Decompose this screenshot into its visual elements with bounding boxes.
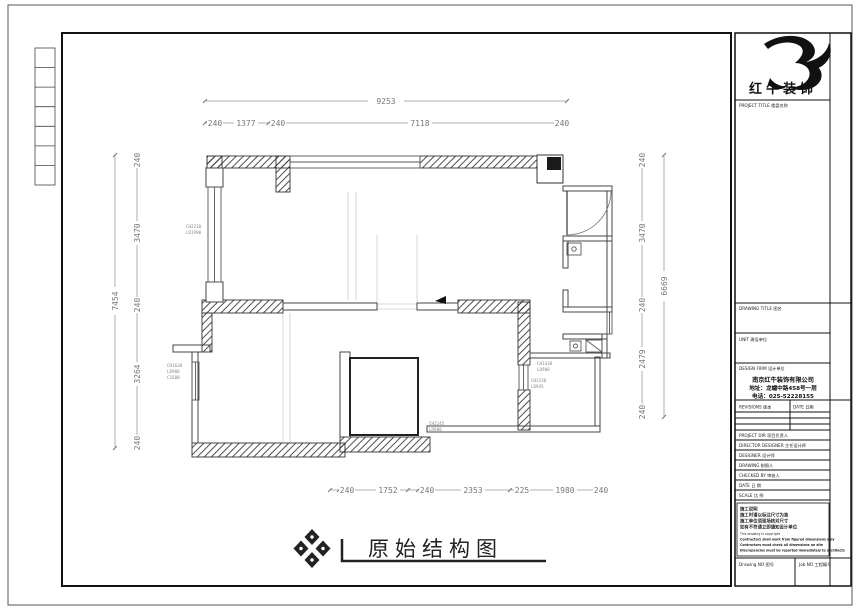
title-block-labels: PROJECT TITLE 楼盘名称 DRAWING TITLE 图名 UNIT… xyxy=(739,102,831,568)
unit-label: UNIT 建设单位 xyxy=(739,336,767,343)
label-window-bottom-1: CH2245 xyxy=(429,421,445,426)
note-line-1: 施工说明 xyxy=(740,506,758,513)
note-line-4: 如有不符请立即通知设计单位 xyxy=(740,524,798,531)
staff-row-drawing: DRAWING 制图人 xyxy=(739,462,774,469)
staff-row-date: DATE 日 期 xyxy=(739,483,761,489)
inner-room-outline xyxy=(350,358,418,435)
dim-bottom-3: 2353 xyxy=(463,486,482,495)
company-phone: 电话：025-52228155 xyxy=(752,392,814,400)
dim-bottom-2: 240 xyxy=(420,486,435,495)
dim-top-0: 240 xyxy=(208,119,223,128)
dim-right-0: 240 xyxy=(638,153,647,168)
dim-left-total: 7454 xyxy=(111,291,120,310)
company-name: 南京红牛装饰有限公司 xyxy=(752,376,814,384)
dim-top-4: 240 xyxy=(555,119,570,128)
dim-bottom-4: 225 xyxy=(515,486,530,495)
date-col-label: DATE 日期 xyxy=(793,405,814,411)
design-firm-label: DESIGN FIRM 设计单位 xyxy=(739,365,785,372)
label-window-left-lower-2: LD980 xyxy=(167,369,180,374)
dim-top-2: 240 xyxy=(271,119,286,128)
drawing-sheet: CH2210 LD1990 CH1630 LD980 C1600 CH1430 … xyxy=(0,0,860,610)
label-window-right-upper-1: CH1430 xyxy=(537,361,553,366)
dim-bottom-5: 1980 xyxy=(555,486,574,495)
dim-right-4: 240 xyxy=(638,405,647,420)
project-title-label: PROJECT TITLE 楼盘名称 xyxy=(739,102,788,109)
company-address: 地址：龙蟠中路458号一层 xyxy=(749,384,817,392)
dim-left-0: 240 xyxy=(133,153,142,168)
drawing-no-label: Drawing NO 图号 xyxy=(739,562,774,568)
drawing-frame xyxy=(62,33,731,586)
dim-bottom-6: 240 xyxy=(594,486,609,495)
staff-row-director-designer: DIRECTOR DESIGNER 主任设计师 xyxy=(739,442,806,449)
dim-top-1: 1377 xyxy=(236,119,255,128)
dims-bottom: 240 1752 240 2353 225 1980 240 xyxy=(339,486,609,496)
label-window-left-upper-2: LD1990 xyxy=(186,230,202,235)
fold-marks xyxy=(35,48,55,185)
entry-door xyxy=(567,191,611,235)
revisions-label: REVISIONS 版本 xyxy=(739,404,772,411)
note-line-5: This drawing is copyright xyxy=(739,532,781,536)
label-window-right-lower-1: CH1530 xyxy=(531,378,547,383)
note-line-7: Contractors must check all dimensions on… xyxy=(740,543,823,547)
ornament-diamond xyxy=(294,529,331,568)
staff-row-checked-by: CHECKED BY 审核人 xyxy=(739,472,780,479)
fixtures xyxy=(567,243,602,352)
flue-block xyxy=(537,155,563,183)
dim-right-total: 6669 xyxy=(660,276,669,295)
dim-bottom-1: 1752 xyxy=(378,486,397,495)
dim-top-total: 9253 xyxy=(376,97,395,106)
title-block: 红牛装饰 PROJECT TITLE 楼盘名称 DRAWING TITLE 图名… xyxy=(735,33,851,586)
staff-row-designer: DESIGNER 设计师 xyxy=(739,452,775,459)
note-line-8: Discrepancies must be reported immediate… xyxy=(740,549,845,553)
note-line-6: Contractors shall work from figured dime… xyxy=(740,538,836,542)
logo-text: 红牛装饰 xyxy=(749,81,817,97)
dim-right-2: 240 xyxy=(638,298,647,313)
dim-right-3: 2479 xyxy=(638,349,647,368)
floor-plan: CH2210 LD1990 CH1630 LD980 C1600 CH1430 … xyxy=(167,155,612,457)
dim-right-1: 3470 xyxy=(638,223,647,242)
staff-row-project-dir: PROJECT DIR 项目负责人 xyxy=(739,432,789,439)
cad-canvas: CH2210 LD1990 CH1630 LD980 C1600 CH1430 … xyxy=(0,0,860,610)
label-window-right-upper-2: LD900 xyxy=(537,367,550,372)
drawing-title-group: 原始结构图 xyxy=(294,529,547,568)
dim-bottom-0: 240 xyxy=(340,486,355,495)
dim-left-3: 3264 xyxy=(133,364,142,383)
company-info: 南京红牛装饰有限公司 地址：龙蟠中路458号一层 电话：025-52228155 xyxy=(749,376,817,400)
dim-top-3: 7118 xyxy=(410,119,429,128)
dim-left-2: 240 xyxy=(133,298,142,313)
drawing-title-label: DRAWING TITLE 图名 xyxy=(739,305,782,312)
dim-left-1: 3470 xyxy=(133,223,142,242)
label-window-left-upper-1: CH2210 xyxy=(186,224,202,229)
job-no-label: Job NO 工程编号 xyxy=(798,561,831,568)
page-title: 原始结构图 xyxy=(368,537,503,561)
dim-left-4: 240 xyxy=(133,436,142,451)
label-window-bottom-2: LD900 xyxy=(429,427,442,432)
label-window-left-lower-3: C1600 xyxy=(167,375,180,380)
staff-row-scale: SCALE 比 例 xyxy=(739,492,763,499)
label-window-right-lower-2: LD945 xyxy=(531,384,544,389)
note-line-2: 施工时请以标注尺寸为准 xyxy=(740,512,789,519)
note-line-3: 施工单位须现场核对尺寸 xyxy=(740,518,789,525)
label-window-left-lower-1: CH1630 xyxy=(167,363,183,368)
